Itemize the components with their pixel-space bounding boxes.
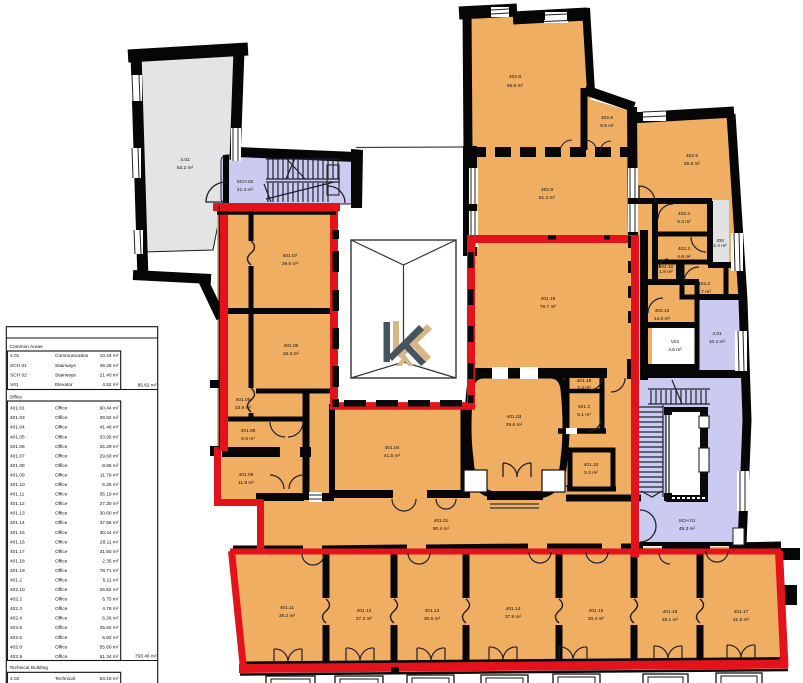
svg-text:6.26 m²: 6.26 m² [102,616,119,622]
svg-text:401.04: 401.04 [10,425,25,431]
svg-text:4.02: 4.02 [180,157,190,163]
svg-text:30.60 m²: 30.60 m² [100,511,119,517]
svg-text:Office: Office [55,473,68,479]
svg-text:401.05: 401.05 [236,397,251,403]
svg-text:401.13: 401.13 [10,511,25,517]
svg-text:401.19: 401.19 [541,296,556,302]
svg-text:Office: Office [55,406,68,412]
svg-text:51.3 m²: 51.3 m² [539,195,556,201]
svg-text:401.2: 401.2 [10,578,22,584]
svg-text:78.71 m²: 78.71 m² [100,568,119,574]
svg-text:401.07: 401.07 [283,253,298,259]
svg-text:2.35 m²: 2.35 m² [102,558,119,564]
svg-text:37.86 m²: 37.86 m² [100,520,119,526]
svg-text:402.5: 402.5 [10,625,22,631]
svg-text:28.11 m²: 28.11 m² [100,539,119,545]
svg-text:Office: Office [55,444,68,450]
svg-text:SCH 02: SCH 02 [237,179,254,185]
svg-text:401.04: 401.04 [385,445,400,451]
svg-text:33.95 m²: 33.95 m² [100,434,119,440]
svg-text:11.8 m²: 11.8 m² [238,480,254,486]
svg-text:5.3 m²: 5.3 m² [584,470,598,476]
svg-text:401.16: 401.16 [10,539,25,545]
svg-text:Office: Office [55,463,68,469]
svg-text:14.0 m²: 14.0 m² [654,316,671,322]
svg-text:401.09: 401.09 [10,473,25,479]
svg-text:Communication: Communication [55,353,89,359]
svg-text:55.6 m²: 55.6 m² [507,83,524,89]
svg-text:401.18: 401.18 [577,378,592,384]
svg-text:402.4: 402.4 [678,211,690,217]
svg-text:402.10: 402.10 [10,587,25,593]
svg-text:401.12: 401.12 [10,501,25,507]
svg-text:35.2 m²: 35.2 m² [279,613,296,619]
svg-text:29.6 m²: 29.6 m² [282,261,299,267]
svg-text:25.29 m²: 25.29 m² [100,444,119,450]
svg-text:Office: Office [55,625,68,631]
svg-text:90.4 m²: 90.4 m² [433,526,450,532]
svg-text:Office: Office [55,501,68,507]
svg-text:15.52 m²: 15.52 m² [100,587,119,593]
svg-text:Office: Office [55,644,68,650]
svg-text:Office: Office [55,453,68,459]
svg-text:402.6: 402.6 [10,635,22,641]
svg-text:402.3: 402.3 [678,246,690,252]
svg-text:Office: Office [10,395,23,401]
svg-text:401.18: 401.18 [10,558,25,564]
svg-text:V01: V01 [10,382,19,388]
svg-text:4.01: 4.01 [10,353,20,359]
svg-text:31.60 m²: 31.60 m² [100,549,119,555]
svg-text:8.9 m²: 8.9 m² [241,436,255,442]
svg-text:Stairways: Stairways [55,363,76,369]
svg-text:39.82 m²: 39.82 m² [100,415,119,421]
svg-text:85.62 m²: 85.62 m² [138,383,157,389]
svg-text:Office: Office [55,511,68,517]
svg-text:27.30 m²: 27.30 m² [100,501,119,507]
svg-text:49.28 m²: 49.28 m² [100,363,119,369]
svg-text:Office: Office [55,482,68,488]
svg-text:402.2: 402.2 [698,281,710,287]
svg-text:402.3: 402.3 [10,606,22,612]
svg-text:V01: V01 [671,339,680,345]
svg-text:41.46 m²: 41.46 m² [100,425,119,431]
svg-text:26.3 m²: 26.3 m² [283,351,300,357]
svg-text:401.08: 401.08 [241,428,256,434]
svg-text:25.62 m²: 25.62 m² [100,625,119,631]
svg-text:1.8 m²: 1.8 m² [659,269,673,275]
svg-text:758.46 m²: 758.46 m² [135,654,157,660]
svg-text:401.03: 401.03 [507,414,522,420]
svg-text:401.14: 401.14 [506,606,521,612]
svg-text:Office: Office [55,587,68,593]
svg-text:Technical: Technical [55,676,75,682]
svg-text:4.5 m²: 4.5 m² [668,347,682,353]
svg-text:Office: Office [55,558,68,564]
svg-text:401.16: 401.16 [663,609,678,615]
svg-text:41.5 m²: 41.5 m² [384,453,401,459]
svg-text:401.13: 401.13 [425,608,440,614]
svg-text:401.01: 401.01 [434,518,449,524]
svg-text:402.5: 402.5 [686,153,698,159]
svg-text:5.25 m²: 5.25 m² [102,482,119,488]
svg-text:4.52 m²: 4.52 m² [102,382,119,388]
svg-text:8.8 m²: 8.8 m² [600,123,614,129]
svg-text:402.8: 402.8 [509,74,521,80]
svg-text:4.02: 4.02 [10,676,20,682]
svg-text:402.4: 402.4 [10,616,22,622]
svg-text:Office: Office [55,492,68,498]
svg-text:2.4 m²: 2.4 m² [577,385,591,391]
svg-text:401.03: 401.03 [10,415,25,421]
svg-text:5.11 m²: 5.11 m² [103,578,119,584]
svg-text:Elevator: Elevator [55,382,73,388]
svg-text:SCH 02: SCH 02 [10,372,27,378]
svg-text:29.6 m²: 29.6 m² [506,422,523,428]
svg-text:Common Areas: Common Areas [10,344,44,350]
svg-text:6.3 m²: 6.3 m² [677,219,691,225]
svg-text:Office: Office [55,606,68,612]
svg-text:30.6 m²: 30.6 m² [424,616,441,622]
svg-text:4.78 m²: 4.78 m² [102,606,119,612]
svg-text:401.08: 401.08 [10,463,25,469]
svg-text:401.17: 401.17 [10,549,25,555]
svg-text:21.40 m²: 21.40 m² [100,372,119,378]
svg-text:10.44 m²: 10.44 m² [100,353,119,359]
svg-text:8.86 m²: 8.86 m² [102,463,119,469]
svg-text:33.9 m²: 33.9 m² [235,405,252,411]
svg-text:Office: Office [55,425,68,431]
svg-text:4.01: 4.01 [712,331,722,337]
svg-text:401.11: 401.11 [280,605,295,611]
svg-text:Office: Office [55,654,68,660]
svg-text:6.75 m²: 6.75 m² [102,597,119,603]
svg-text:402.10: 402.10 [655,308,670,314]
svg-text:11.79 m²: 11.79 m² [100,473,119,479]
svg-text:401.15: 401.15 [589,608,604,614]
svg-text:402.9: 402.9 [541,187,553,193]
svg-text:5.7 m²: 5.7 m² [697,289,711,295]
svg-text:Technical Building: Technical Building [10,665,49,671]
svg-text:401.17: 401.17 [734,609,749,615]
svg-text:401.10: 401.10 [584,462,599,468]
svg-text:401.06: 401.06 [10,444,25,450]
svg-text:401.15: 401.15 [10,530,25,536]
svg-text:Office: Office [55,616,68,622]
svg-text:Stairways: Stairways [55,372,76,378]
svg-text:5.92 m²: 5.92 m² [102,635,119,641]
svg-text:Office: Office [55,635,68,641]
svg-text:Office: Office [55,530,68,536]
svg-text:25.6 m²: 25.6 m² [684,161,701,167]
svg-text:402.8: 402.8 [10,644,22,650]
svg-text:SCH 01: SCH 01 [10,363,27,369]
svg-text:31.6 m²: 31.6 m² [733,617,750,623]
svg-text:Office: Office [55,549,68,555]
svg-text:5.1 m²: 5.1 m² [577,412,591,418]
svg-text:55.60 m²: 55.60 m² [100,644,119,650]
svg-text:401.01: 401.01 [10,406,25,412]
svg-text:402.6: 402.6 [601,115,613,121]
svg-text:90.44 m²: 90.44 m² [100,406,119,412]
svg-text:401.07: 401.07 [10,453,25,459]
svg-text:401.19: 401.19 [10,568,25,574]
svg-text:401.09: 401.09 [239,472,254,478]
svg-text:401.14: 401.14 [10,520,25,526]
svg-text:Office: Office [55,597,68,603]
svg-text:SCH 01: SCH 01 [679,518,696,524]
svg-text:27.3 m²: 27.3 m² [356,616,373,622]
svg-text:63.16 m²: 63.16 m² [100,676,119,682]
svg-text:Office: Office [55,434,68,440]
svg-text:401.10: 401.10 [10,482,25,488]
svg-text:28.1 m²: 28.1 m² [662,617,679,623]
svg-text:63.2 m²: 63.2 m² [177,165,194,171]
svg-text:49.3 m²: 49.3 m² [679,526,696,532]
svg-text:Office: Office [55,520,68,526]
svg-text:401.05: 401.05 [10,434,25,440]
svg-text:Office: Office [55,539,68,545]
svg-text:35.19 m²: 35.19 m² [100,492,119,498]
svg-text:402.2: 402.2 [10,597,22,603]
svg-text:51.34 m²: 51.34 m² [100,654,119,660]
svg-text:30.44 m²: 30.44 m² [100,530,119,536]
svg-text:402.9: 402.9 [10,654,22,660]
svg-text:30.4 m²: 30.4 m² [588,616,605,622]
svg-text:401.06: 401.06 [284,343,299,349]
svg-text:Office: Office [55,415,68,421]
svg-text:Office: Office [55,568,68,574]
svg-text:401.12: 401.12 [357,608,372,614]
svg-text:Office: Office [55,578,68,584]
svg-text:4.8 m²: 4.8 m² [677,254,691,260]
svg-text:2.4 m²: 2.4 m² [713,243,727,249]
svg-text:401.2: 401.2 [578,404,590,410]
svg-text:37.9 m²: 37.9 m² [505,614,522,620]
svg-text:10.4 m²: 10.4 m² [709,339,726,345]
svg-text:401.11: 401.11 [10,492,25,498]
svg-text:78.7 m²: 78.7 m² [540,304,557,310]
svg-text:29.60 m²: 29.60 m² [100,453,119,459]
svg-text:21.4 m²: 21.4 m² [237,187,254,193]
